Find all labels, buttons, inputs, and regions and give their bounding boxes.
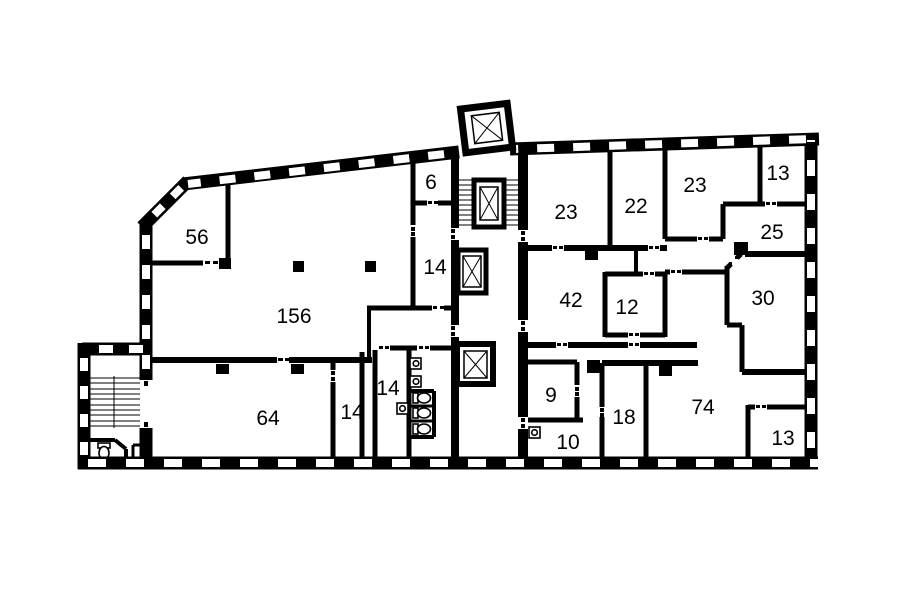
toilet-icon [413,424,431,434]
sink-icon [529,427,540,438]
room-label-6: 6 [425,171,437,194]
room-label-64: 64 [256,407,280,430]
room-label-10: 10 [556,431,579,454]
toilet-icon [413,408,431,418]
room-label-12: 12 [615,296,638,319]
room-label-14-wc: 14 [376,377,400,400]
sink-icon [410,358,421,369]
toilet-icon [413,393,431,403]
elevator-icon [474,180,504,227]
room-label-9: 9 [545,384,557,407]
sink-icon [410,376,421,387]
room-label-13-bottom: 13 [771,427,794,450]
room-label-42: 42 [559,289,582,312]
column [365,261,376,272]
room-label-30: 30 [751,287,774,310]
room-label-18: 18 [612,406,635,429]
room-label-23-right: 23 [683,174,706,197]
floor-plan-page: 56 156 6 14 64 14 14 9 10 42 12 18 74 23… [0,0,900,604]
room-label-13-top: 13 [766,162,789,185]
room-label-74: 74 [691,396,715,419]
column [293,261,304,272]
room-label-23-left: 23 [554,201,577,224]
sink-icon [397,403,408,414]
room-label-25: 25 [760,221,783,244]
elevator-icon [458,250,486,293]
elevator-icon [457,344,493,384]
floor-plan-canvas: 56 156 6 14 64 14 14 9 10 42 12 18 74 23… [0,0,900,604]
room-label-22: 22 [624,195,647,218]
room-label-14-upper: 14 [423,256,447,279]
room-label-56: 56 [185,226,208,249]
room-label-14-lower: 14 [340,401,364,424]
room-label-156: 156 [276,305,311,328]
elevator-icon [460,103,512,152]
